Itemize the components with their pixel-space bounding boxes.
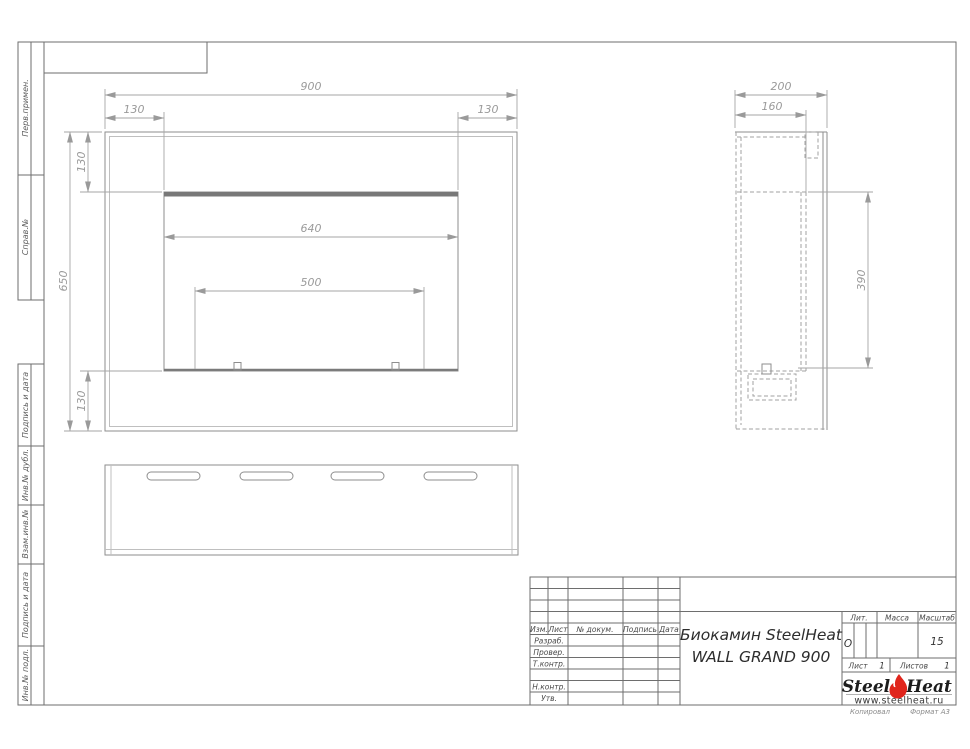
- drawing-sheet: Перв.примен. Справ.№ Подпись и дата Инв.…: [0, 0, 970, 749]
- bottom-outline: [105, 465, 518, 555]
- dim-side-depth: 200: [771, 80, 792, 93]
- drawing-canvas: Перв.примен. Справ.№ Подпись и дата Инв.…: [0, 0, 970, 749]
- logo-steel-text: Steel: [842, 677, 891, 697]
- tb-row-utv: Утв.: [541, 694, 557, 703]
- vent-slot-3: [331, 472, 384, 480]
- front-opening-top-band: [164, 192, 458, 197]
- sheet-footer: Копировал Формат А3: [850, 708, 950, 716]
- front-view-dimensions: 900 130 130 650 130 130 640 500: [57, 80, 517, 431]
- product-title-line1: Биокамин SteelHeat: [680, 626, 843, 644]
- stamp-label-inv-dubl: Инв.№ дубл.: [21, 449, 30, 501]
- tb-row-razrab: Разраб.: [534, 637, 563, 646]
- stamp-label-perv-primen: Перв.примен.: [21, 79, 30, 137]
- dim-front-inset-right: 130: [478, 103, 499, 116]
- stamp-label-inv-podl: Инв.№ подл.: [21, 649, 30, 702]
- tb-col-podpis: Подпись: [623, 625, 657, 634]
- tb-sheet-label: Лист: [847, 662, 868, 671]
- inner-frame: [44, 42, 956, 705]
- tb-col-docnum: № докум.: [576, 625, 614, 634]
- tb-mass-label: Масса: [885, 614, 909, 623]
- dim-side-opening-height: 390: [855, 270, 868, 291]
- dim-front-bottom-margin: 130: [75, 391, 88, 412]
- tb-col-data: Дата: [658, 625, 679, 634]
- logo-url: www.steelheat.ru: [854, 696, 943, 707]
- stamp-label-sprav-no: Справ.№: [21, 219, 30, 255]
- tb-col-izm: Изм.: [530, 625, 548, 634]
- dim-front-inset-left: 130: [124, 103, 145, 116]
- designation-box: [44, 42, 207, 73]
- dim-front-opening-width: 640: [301, 222, 322, 235]
- tb-lit-value: О: [844, 638, 852, 650]
- side-view: [735, 132, 827, 430]
- tb-row-nkontr: Н.контр.: [532, 683, 566, 692]
- vent-slot-4: [424, 472, 477, 480]
- stamp-label-vzam-inv: Взам.инв.№: [21, 509, 30, 558]
- footer-format-label: Формат А3: [910, 708, 950, 716]
- dim-front-top-margin: 130: [75, 152, 88, 173]
- tb-col-list: Лист: [547, 625, 568, 634]
- side-burner-tab: [762, 364, 771, 374]
- dim-front-height: 650: [57, 271, 70, 292]
- tb-sheets-value: 1: [944, 662, 949, 672]
- vent-slot-1: [147, 472, 200, 480]
- bottom-view: [105, 465, 518, 555]
- tb-lit-label: Лит.: [849, 614, 867, 623]
- tb-scale-label: Масштаб: [919, 614, 955, 623]
- side-top-notch: [805, 132, 818, 158]
- vent-slot-2: [240, 472, 293, 480]
- dim-front-width: 900: [301, 80, 322, 93]
- stamp-label-podpis-data-2: Подпись и дата: [21, 572, 30, 638]
- tb-row-tkontr: Т.контр.: [533, 660, 566, 669]
- dim-side-inner-depth: 160: [762, 100, 783, 113]
- tb-scale-value: 15: [930, 636, 944, 648]
- tb-sheet-value: 1: [879, 662, 884, 672]
- dim-front-burner-width: 500: [301, 276, 322, 289]
- tb-sheets-label: Листов: [899, 662, 928, 671]
- steelheat-logo: Steel Heat www.steelheat.ru: [842, 674, 952, 707]
- sheet-frame: [44, 42, 956, 705]
- logo-heat-text: Heat: [905, 677, 952, 697]
- left-stamp-column: Перв.примен. Справ.№ Подпись и дата Инв.…: [18, 42, 44, 705]
- footer-copy-label: Копировал: [850, 708, 891, 716]
- tb-row-prover: Провер.: [533, 648, 564, 657]
- product-title-line2: WALL GRAND 900: [692, 648, 831, 666]
- stamp-label-podpis-data-1: Подпись и дата: [21, 372, 30, 438]
- side-view-dimensions: 200 160 390: [735, 80, 873, 368]
